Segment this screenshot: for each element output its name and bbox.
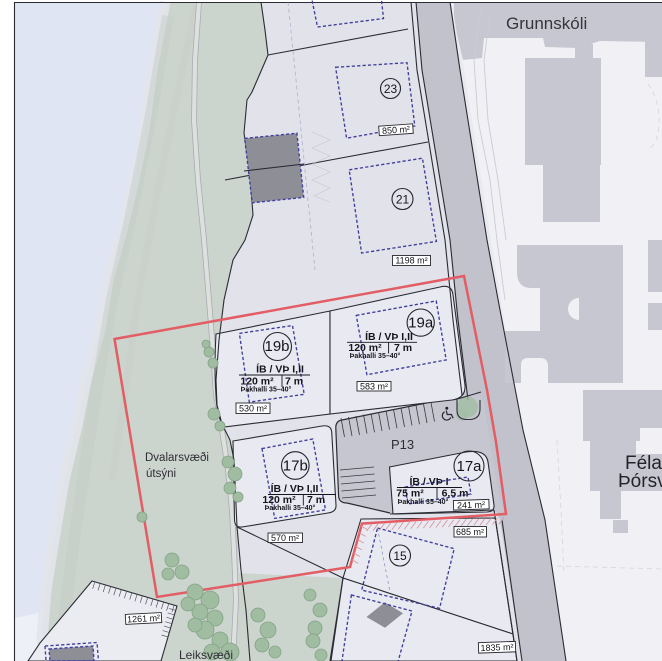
svg-text:ÍB / VÞ I: ÍB / VÞ I xyxy=(409,475,448,488)
svg-text:1198 m²: 1198 m² xyxy=(395,256,427,266)
svg-text:530 m²: 530 m² xyxy=(239,404,267,414)
svg-text:23: 23 xyxy=(384,82,398,96)
svg-text:685 m²: 685 m² xyxy=(456,527,484,537)
svg-text:Grunnskóli: Grunnskóli xyxy=(506,14,587,33)
svg-text:útsýni: útsýni xyxy=(146,468,176,480)
svg-text:6,5 m: 6,5 m xyxy=(442,488,469,500)
svg-text:1261 m²: 1261 m² xyxy=(127,613,161,625)
svg-text:P13: P13 xyxy=(391,437,414,452)
svg-text:75 m²: 75 m² xyxy=(396,488,424,500)
svg-text:19a: 19a xyxy=(408,315,434,332)
svg-text:ÍB / VÞ I,II: ÍB / VÞ I,II xyxy=(256,363,304,376)
svg-text:850 m²: 850 m² xyxy=(382,124,411,136)
svg-text:Leiksvæði: Leiksvæði xyxy=(179,648,233,661)
svg-text:570 m²: 570 m² xyxy=(271,533,299,543)
svg-text:17b: 17b xyxy=(283,458,308,475)
svg-text:241 m²: 241 m² xyxy=(457,500,485,511)
svg-text:583 m²: 583 m² xyxy=(360,382,388,392)
svg-text:1835 m²: 1835 m² xyxy=(480,642,513,653)
svg-text:17a: 17a xyxy=(456,458,482,475)
svg-text:Þakhalli 35–40°: Þakhalli 35–40° xyxy=(241,386,292,394)
svg-text:Þakhalli 35–40°: Þakhalli 35–40° xyxy=(350,352,401,360)
svg-text:Þakhalli 35–40°: Þakhalli 35–40° xyxy=(398,498,449,506)
svg-text:21: 21 xyxy=(396,193,410,207)
svg-text:Þakhalli 35–40°: Þakhalli 35–40° xyxy=(265,504,316,512)
svg-text:19b: 19b xyxy=(264,338,289,355)
svg-text:Þórsvöll: Þórsvöll xyxy=(618,471,662,492)
svg-text:Dvalarsvæði: Dvalarsvæði xyxy=(145,452,209,464)
svg-text:15: 15 xyxy=(393,549,407,563)
